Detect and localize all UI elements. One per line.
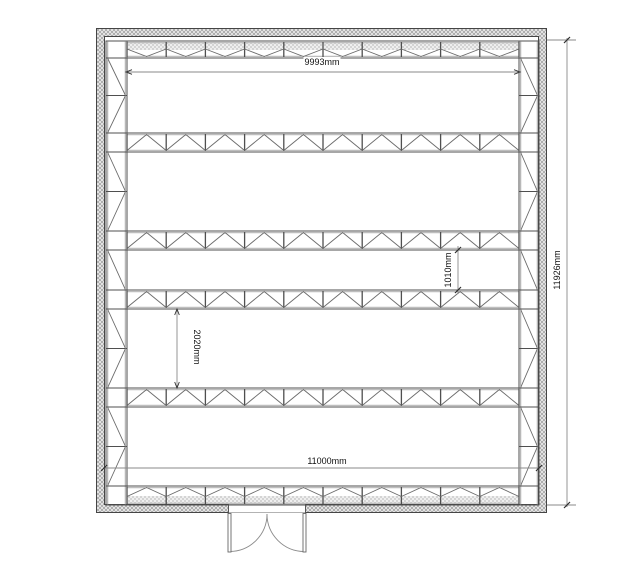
dimension-label-overall-depth: 11926mm: [552, 249, 562, 290]
double-door-icon: [228, 514, 306, 553]
door-leaf-left: [228, 514, 231, 553]
door-leaf-right: [303, 514, 306, 553]
dimension-label-wide-aisle: 2020mm: [192, 328, 202, 365]
dimension-label-top-span: 9993mm: [303, 57, 340, 67]
dimension-label-interior-width: 11000mm: [306, 456, 347, 466]
floor-plan-linework: [0, 0, 640, 566]
floor-plan: 9993mm 11000mm 11926mm 1010mm 2020mm: [0, 0, 640, 566]
dimension-label-narrow-aisle: 1010mm: [443, 251, 453, 288]
wall-outline: [97, 29, 547, 515]
